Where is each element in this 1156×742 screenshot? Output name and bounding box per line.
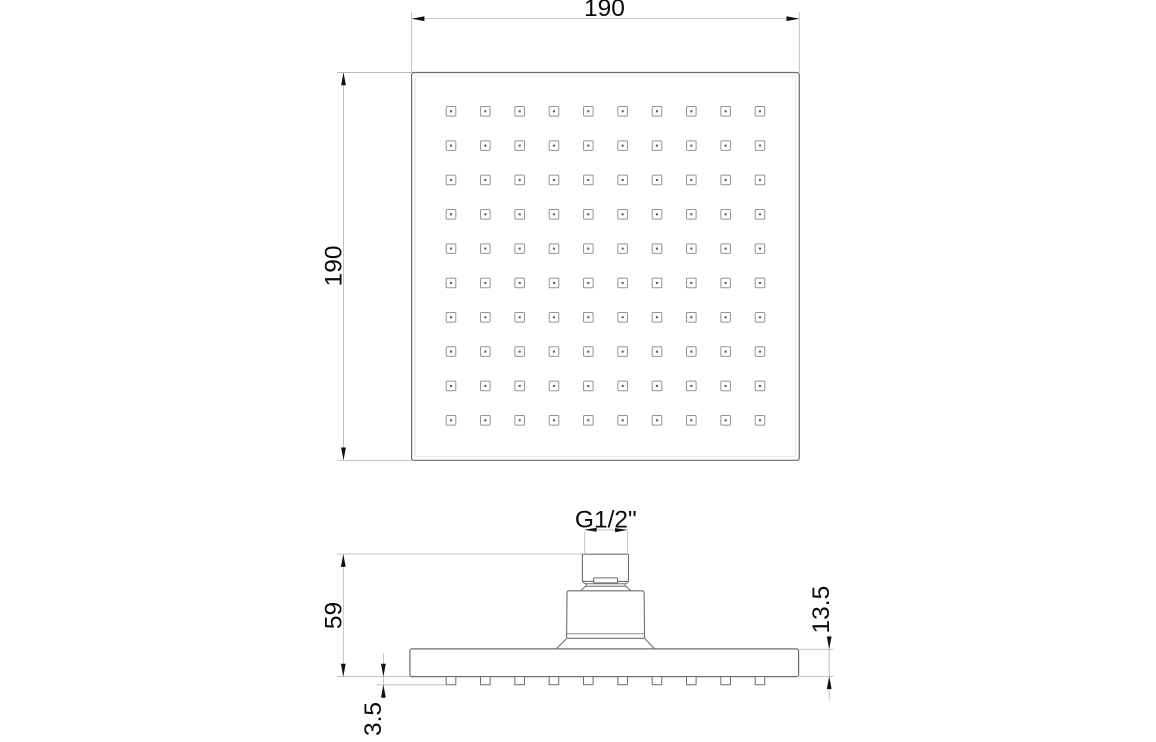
svg-text:190: 190 [584, 0, 625, 22]
svg-text:13.5: 13.5 [808, 586, 835, 634]
svg-text:59: 59 [321, 602, 348, 629]
svg-text:3.5: 3.5 [360, 702, 387, 736]
svg-text:190: 190 [321, 246, 348, 287]
